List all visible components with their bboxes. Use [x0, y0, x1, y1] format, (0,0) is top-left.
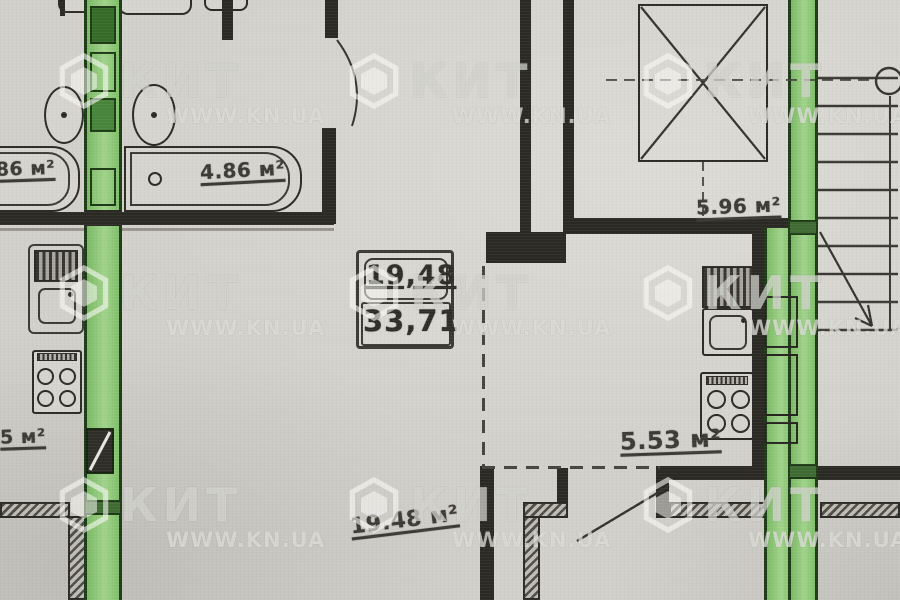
area-box-upper-value: 19,48 [366, 260, 456, 291]
area-box-upper-cell: 19,48 [364, 258, 448, 300]
stove-burner [59, 368, 76, 385]
bathtub-drain [148, 172, 162, 186]
elevator-icon [638, 4, 768, 162]
washing-machine-dot [61, 112, 67, 118]
area-label-elevator-room: 5.96 м² [696, 193, 782, 220]
watermark-url-text: WWW.KN.UA [166, 528, 325, 552]
stove-burner [37, 368, 54, 385]
stove-burner [37, 390, 54, 407]
wall [656, 466, 768, 480]
area-box-lower-value: 33,71 [363, 304, 460, 338]
green-wall-crossing [788, 464, 818, 479]
stove-panel [37, 353, 77, 361]
wall [520, 0, 531, 233]
watermark-brand-text: КИТ [120, 478, 242, 532]
partition-wall-hatched [523, 516, 540, 600]
green-wall-crossing [788, 220, 818, 235]
kitchen-counter-icon [702, 266, 754, 308]
wall-shadow-line [0, 228, 334, 231]
partition-wall-hatched [669, 502, 767, 518]
wall [322, 128, 336, 224]
area-label-bath-right: 4.86 м² [199, 156, 285, 184]
stove-burner [59, 390, 76, 407]
wall [818, 466, 900, 480]
area-box-lower-cell: 33,71 [361, 302, 451, 346]
wall-stub [60, 0, 65, 16]
stove-burner [707, 390, 726, 409]
dashed-zone-boundary [482, 466, 660, 469]
toilet-icon [118, 0, 192, 15]
green-wall-crossing [84, 500, 122, 515]
duct-shaft [764, 422, 798, 444]
stove-burner [731, 414, 750, 433]
total-area-box: 19,48 33,71 [356, 250, 454, 349]
door-swing-arc [337, 40, 357, 126]
green-wall-block [90, 168, 116, 206]
green-wall-block [90, 6, 116, 44]
area-label-left-room: 5 м² [0, 425, 46, 449]
watermark-url-text: WWW.KN.UA [452, 104, 611, 128]
watermark-brand-text: КИТ [120, 266, 242, 320]
stove-burner [731, 390, 750, 409]
wall-crossing [84, 210, 122, 226]
watermark-brand-text: КИТ [410, 54, 532, 108]
green-wall-block [90, 98, 116, 132]
wall-stub [222, 0, 233, 40]
wall [0, 212, 84, 225]
kit-logo-icon [642, 264, 694, 322]
wall [486, 232, 566, 263]
wall [480, 466, 494, 600]
wall [122, 212, 334, 225]
wall [563, 0, 574, 230]
sink-faucet-dot [741, 318, 746, 323]
watermark-url-text: WWW.KN.UA [748, 104, 900, 128]
washing-machine-dot [151, 112, 157, 118]
kitchen-counter-icon [34, 250, 78, 282]
stairs-treads [818, 78, 898, 330]
green-wall-door-marker [86, 428, 114, 474]
stove-panel [706, 376, 748, 385]
partition-wall-hatched [820, 502, 900, 518]
watermark-url-text: WWW.KN.UA [166, 316, 325, 340]
area-label-living-room: 19.48 м² [349, 501, 460, 539]
sink-faucet-dot [68, 292, 73, 297]
area-label-bath-left: .86 м² [0, 157, 55, 181]
duct-shaft [764, 354, 798, 416]
duct-shaft [764, 296, 798, 348]
watermark-url-text: WWW.KN.UA [452, 316, 611, 340]
area-label-kitchen: 5.53 м² [620, 424, 722, 456]
wall-stub [325, 0, 338, 38]
wall-stub [656, 468, 669, 518]
watermark-url-text: WWW.KN.UA [166, 104, 325, 128]
floor-plan-photo: 19,48 33,71 .86 м² 4.86 м² 5.96 м² 5.53 … [0, 0, 900, 600]
stairs-direction-arrow [820, 232, 872, 326]
axis-marker-circle [876, 68, 900, 94]
watermark-kit-logo: КИТ [348, 52, 532, 110]
green-wall-block [90, 52, 116, 92]
kit-logo-icon [348, 52, 400, 110]
partition-wall-hatched [0, 502, 70, 518]
dashed-zone-boundary [482, 266, 485, 468]
